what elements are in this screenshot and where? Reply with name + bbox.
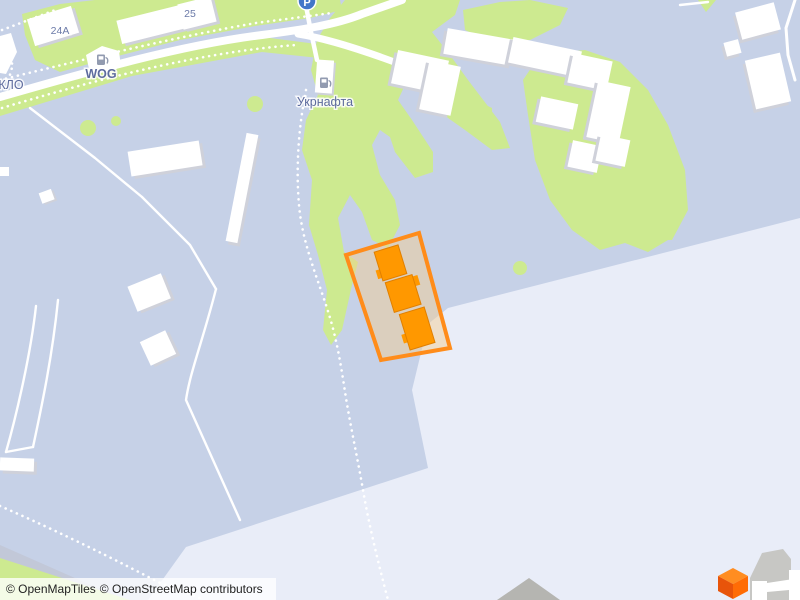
parking-letter: P	[303, 0, 310, 9]
building-small	[0, 167, 9, 176]
green-blob	[513, 261, 527, 275]
building	[0, 457, 37, 474]
attribution-osm-link[interactable]: © OpenStreetMap contributors	[100, 582, 263, 596]
map-viewport[interactable]: P 24A 25 WOG КЛО Укрнафта © OpenMapTiles…	[0, 0, 800, 600]
housenumber-label: 25	[184, 8, 196, 20]
attribution-openmaptiles-link[interactable]: © OpenMapTiles	[6, 582, 96, 596]
green-blob	[111, 116, 121, 126]
poi-label-ukrnafta: Укрнафта	[297, 95, 353, 109]
logo-letter-white	[789, 570, 800, 600]
map-canvas[interactable]: P 24A 25 WOG КЛО Укрнафта	[0, 0, 800, 600]
poi-label-klo: КЛО	[0, 78, 24, 92]
map-attribution: © OpenMapTiles© OpenStreetMap contributo…	[0, 578, 276, 600]
housenumber-label: 24A	[51, 25, 70, 37]
logo-letter-white	[752, 581, 767, 600]
poi-label-wog: WOG	[85, 67, 116, 81]
green-blob	[80, 120, 96, 136]
green-blob	[247, 96, 263, 112]
